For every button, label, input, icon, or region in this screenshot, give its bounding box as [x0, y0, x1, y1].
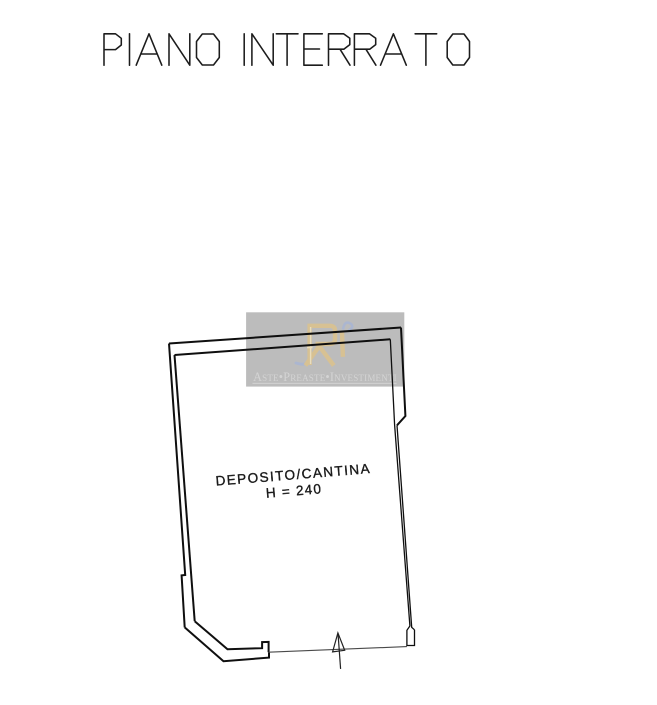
svg-text:Aste•Preaste•Investimenti: Aste•Preaste•Investimenti: [253, 370, 397, 384]
